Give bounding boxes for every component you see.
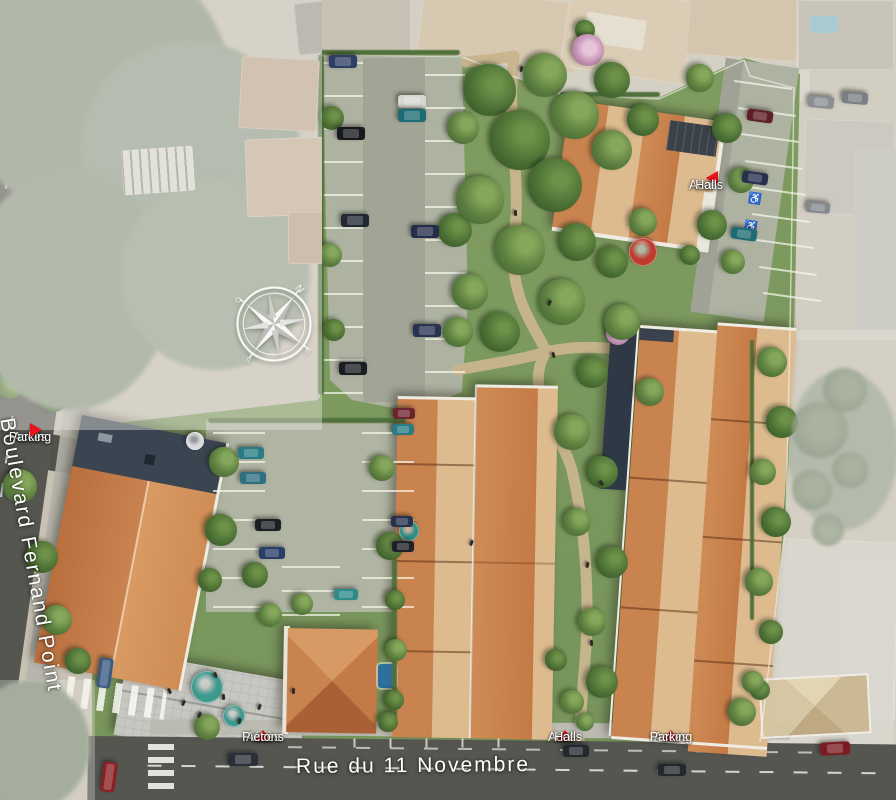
tree (745, 568, 773, 596)
person (222, 694, 225, 700)
tree (832, 452, 868, 488)
parking-stall-line (323, 392, 363, 394)
tree (586, 666, 618, 698)
tree (576, 713, 594, 731)
tree (604, 304, 640, 340)
parking-stall-line (425, 107, 465, 109)
car (398, 95, 426, 108)
access-label: Hall (695, 178, 717, 193)
car (341, 214, 369, 227)
tree (242, 562, 268, 588)
tree (680, 245, 700, 265)
parking-stall-line (323, 194, 363, 196)
tree (578, 608, 606, 636)
tree (761, 507, 791, 537)
car (806, 201, 831, 214)
tree (258, 603, 282, 627)
parking-stall-line (390, 739, 392, 748)
tree (712, 113, 742, 143)
parking-stall-line (323, 95, 363, 97)
car (808, 95, 835, 109)
tree (742, 671, 764, 693)
tree (205, 514, 237, 546)
tree (750, 459, 776, 485)
tree (728, 698, 756, 726)
tree (563, 508, 591, 536)
tree (291, 593, 313, 615)
car (240, 472, 266, 484)
car (228, 753, 258, 766)
faded-trees-bottom-left (0, 680, 95, 800)
tree (627, 104, 659, 136)
parking-stall-line (323, 359, 363, 361)
umbrella (186, 432, 204, 450)
tree (65, 648, 91, 674)
parking-stall-line (425, 173, 465, 175)
tree (560, 690, 584, 714)
tree (198, 568, 222, 592)
parking-stall-line (362, 490, 414, 492)
tree (452, 274, 488, 310)
car (334, 589, 358, 600)
parking-stall-line (323, 161, 363, 163)
tree (592, 130, 632, 170)
tree (572, 34, 604, 66)
parking-stall-line (213, 490, 265, 492)
umbrella (223, 705, 245, 727)
access-label: Hall (554, 730, 576, 745)
tree (757, 347, 787, 377)
tree (576, 356, 608, 388)
tree (697, 210, 727, 240)
faded-building-striped (121, 146, 196, 196)
site-plan: ♿ ♿ ↑ (0, 0, 896, 800)
car (658, 764, 686, 776)
parking-stall-line (282, 590, 340, 592)
faded-tree-mass (0, 680, 90, 800)
parking-stall-line (425, 371, 465, 373)
parking-stall-line (213, 548, 265, 550)
tree (823, 368, 867, 412)
faded-roof (238, 56, 320, 132)
tree (596, 546, 628, 578)
tree (558, 223, 596, 261)
tree (596, 246, 628, 278)
car (329, 55, 357, 68)
tree (480, 312, 520, 352)
tree (686, 64, 714, 92)
tree (209, 447, 239, 477)
parking-stall-line (498, 739, 500, 748)
tree (629, 208, 657, 236)
tree (456, 176, 504, 224)
parking-stall-line (213, 432, 265, 434)
tree (554, 414, 590, 450)
parking-stall-line (425, 272, 465, 274)
tree (721, 250, 745, 274)
tree (545, 649, 567, 671)
umbrella (629, 238, 657, 266)
person (292, 688, 295, 694)
access-arrow-icon (30, 423, 42, 437)
tree (495, 225, 545, 275)
car (339, 362, 367, 375)
car (398, 109, 426, 122)
car (337, 127, 365, 140)
parking-stall-line (425, 74, 465, 76)
tree (378, 712, 398, 732)
car (563, 745, 589, 757)
parking-stall-line (323, 293, 363, 295)
tree (369, 455, 395, 481)
parking-stall-line (362, 577, 414, 579)
car (411, 225, 439, 238)
tree (551, 91, 599, 139)
car (820, 741, 851, 756)
tree (759, 620, 783, 644)
car (255, 519, 281, 531)
tree (384, 690, 404, 710)
parking-stall-line (354, 739, 356, 748)
car (238, 447, 264, 459)
tree (539, 279, 585, 325)
tree (443, 317, 473, 347)
tree (464, 64, 516, 116)
tree (523, 53, 567, 97)
tree (528, 158, 582, 212)
access-label: Piétons (242, 730, 284, 745)
person (514, 210, 517, 216)
car (393, 408, 415, 419)
car (842, 91, 869, 105)
parking-stall-line (462, 739, 464, 748)
tree (385, 639, 407, 661)
access-label: Parking (650, 730, 692, 745)
tree (636, 378, 664, 406)
tree (447, 112, 479, 144)
svg-text:O: O (233, 294, 243, 305)
parking-stall-line (282, 614, 340, 616)
tree (594, 62, 630, 98)
car (392, 424, 414, 435)
parking-stall-line (323, 227, 363, 229)
tree (385, 590, 405, 610)
street-label-rue: Rue du 11 Novembre (296, 753, 530, 779)
person (590, 640, 593, 646)
car (413, 324, 441, 337)
parking-stall-line (282, 566, 340, 568)
parking-stall-line (213, 606, 265, 608)
tree (812, 514, 844, 546)
car (392, 541, 414, 552)
parking-stall-line (426, 739, 428, 748)
umbrella (191, 671, 223, 703)
faded-roof (293, 0, 322, 56)
car (391, 516, 413, 527)
faded-roof (288, 212, 322, 264)
faded-roof (245, 137, 322, 218)
tree (792, 470, 832, 510)
car (259, 547, 285, 559)
